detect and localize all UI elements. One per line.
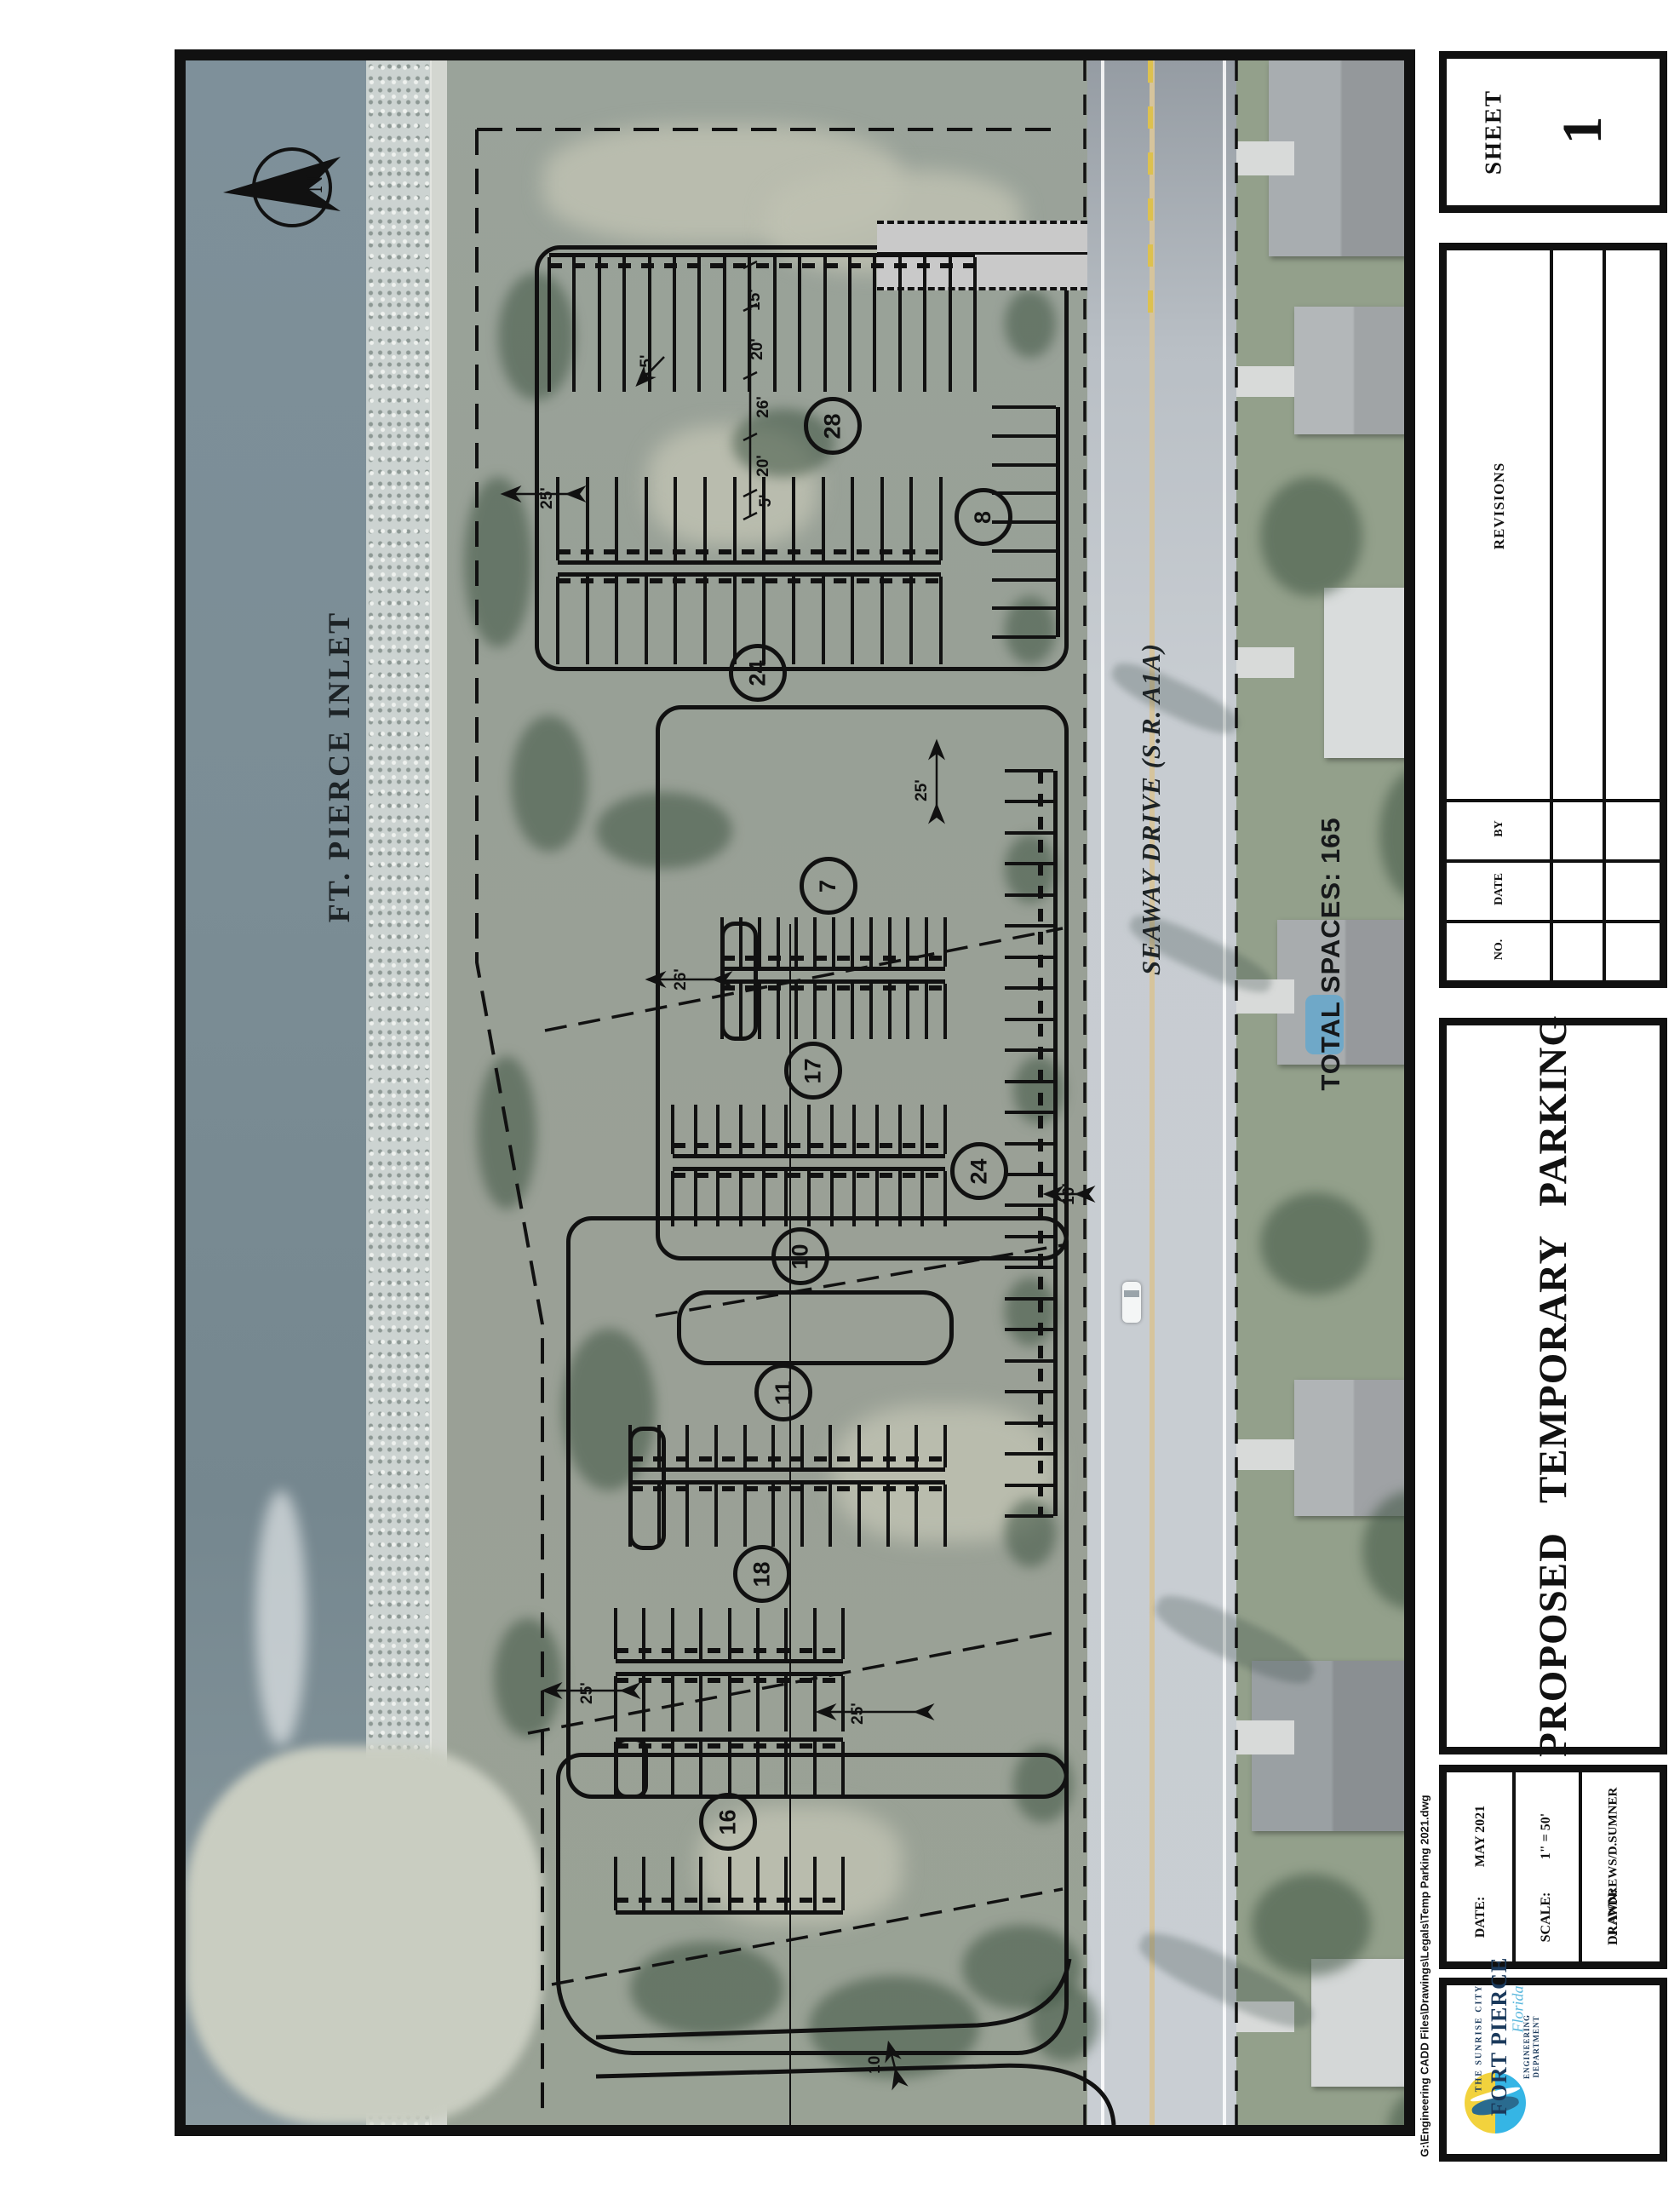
stall-tick [798,257,801,392]
revisions-box: REVISIONS BY DATE NO. [1439,243,1667,988]
stall-tick [762,1105,765,1154]
dimension-label: 25' [913,779,932,801]
stall-tick [898,1171,902,1226]
stall-tick [813,1742,817,1795]
stall-tick [728,1857,731,1910]
stall-tick [873,257,876,392]
stall-tick [925,917,928,967]
stall-tick [886,1485,890,1547]
stall-tick [875,1105,879,1154]
drawing-info-box: DATE: MAY 2021 SCALE: 1" = 50' DRAWN: J.… [1439,1765,1667,1969]
stall-tick [673,257,676,392]
stall-tick [992,434,1056,438]
stall-tick [992,578,1056,582]
sheet-label: SHEET [1481,89,1507,175]
stall-tick [720,917,724,967]
stall-tick [1005,1018,1053,1021]
stall-tick [906,917,909,967]
revisions-col-date: DATE [1493,873,1506,905]
stall-tick [822,477,825,560]
stall-tick [694,1105,697,1154]
stall-tick [813,984,817,1039]
stall-tick [642,1608,645,1659]
agency-logo-box: THE SUNRISE CITY FORT PIERCE Florida ENG… [1439,1978,1667,2162]
stall-tick [614,1742,617,1795]
stall-tick [671,1676,674,1731]
stall-tick [699,1608,702,1659]
stall-tick [886,1425,890,1467]
stall-tick [869,984,873,1039]
parking-row-line [630,1467,945,1472]
stall-tick [762,477,765,560]
stall-tick [841,1857,845,1910]
parking-row-line [616,1910,843,1915]
stall-tick [756,1742,760,1795]
stall-tick [1005,1359,1053,1363]
stall-tick [832,984,835,1039]
sheet-page: 28824717241011181615'20'26'20'5'9.5'25'2… [0,0,1680,2211]
stall-tick [674,477,677,560]
parking-layout-layer: 28824717241011181615'20'26'20'5'9.5'25'2… [186,60,1404,2125]
stall-tick [1005,1142,1053,1146]
stall-tick [614,1676,617,1731]
space-count-value: 28 [819,413,846,439]
stall-tick [699,1676,702,1731]
stall-tick [813,1608,817,1659]
stall-tick [1005,1514,1053,1518]
stall-tick [880,577,884,664]
stall-tick [614,1857,617,1910]
stall-tick [645,577,648,664]
stall-tick [943,1485,947,1547]
stall-tick [813,1857,817,1910]
stall-tick [756,1676,760,1731]
stall-tick [857,1425,861,1467]
stall-tick [556,577,559,664]
stall-tick [949,257,952,392]
date-value: MAY 2021 [1473,1806,1488,1867]
stall-tick [852,1171,856,1226]
stall-tick [773,257,777,392]
stall-tick [739,917,743,967]
logo-dept-line1: ENGINEERING [1522,2014,1531,2079]
drawn-value: J. ANDREWS/D.SUMNER [1607,1788,1621,1937]
stall-tick [642,1742,645,1795]
stall-tick [813,917,817,967]
date-label: DATE: [1473,1897,1488,1938]
stall-tick [943,1425,947,1467]
stall-tick [943,1105,947,1154]
stall-tick [992,606,1056,610]
parking-row-line [1056,407,1060,637]
space-count-value: 24 [744,660,771,686]
space-count-badge: 24 [950,1142,1008,1200]
stall-tick [716,1171,720,1226]
stall-tick [1005,1048,1053,1052]
stall-tick [841,1608,845,1659]
stall-tick [614,1608,617,1659]
stall-tick [909,477,913,560]
space-count-value: 11 [770,1381,796,1405]
stall-tick [685,1425,689,1467]
drawing-title: PROPOSED TEMPORARY PARKING [1530,1014,1576,1757]
stall-tick [739,1171,743,1226]
stall-stop-dashes [549,263,975,268]
info-divider [1512,1772,1516,1961]
stall-tick [813,1676,817,1731]
stall-tick [671,1105,674,1154]
stall-tick [898,1105,902,1154]
sheet-number-box: SHEET 1 [1439,51,1667,213]
stall-tick [758,984,761,1039]
stall-tick [943,984,947,1039]
stall-tick [671,1171,674,1226]
info-divider [1579,1772,1582,1961]
stall-tick [758,917,761,967]
stall-tick [800,1485,804,1547]
stall-stop-dashes [630,1486,945,1491]
stall-tick [728,1676,731,1731]
stall-tick [1005,1173,1053,1176]
stall-tick [792,577,795,664]
stall-tick [851,984,854,1039]
stall-tick [943,1171,947,1226]
stall-tick [869,917,873,967]
stall-tick [857,1485,861,1547]
space-count-value: 24 [966,1158,992,1184]
stall-tick [733,577,737,664]
dimension-label: 20' [748,338,767,360]
stall-tick [784,1608,788,1659]
revisions-col-by: BY [1493,820,1506,836]
stall-tick [1005,800,1053,803]
stall-tick [852,1105,856,1154]
stall-tick [628,1425,632,1467]
stall-tick [748,257,751,392]
dimension-label: 25' [538,487,557,509]
stall-tick [1005,1452,1053,1456]
space-count-badge: 28 [804,397,862,455]
stall-tick [823,257,827,392]
stall-tick [915,1425,918,1467]
stall-tick [739,1105,743,1154]
stall-tick [762,1171,765,1226]
stall-tick [794,917,798,967]
stall-tick [777,917,780,967]
space-count-badge: 7 [800,857,857,915]
space-count-badge: 24 [729,644,787,702]
stall-tick [888,917,892,967]
parking-row-line [616,1659,843,1663]
stall-tick [792,477,795,560]
stall-tick [671,1742,674,1795]
dimension-label: 25' [849,1703,868,1725]
stall-tick [992,549,1056,553]
space-count-badge: 11 [754,1364,812,1421]
space-count-badge: 10 [771,1227,829,1285]
stall-tick [642,1676,645,1731]
stall-tick [841,1676,845,1731]
revisions-header-line [1447,799,1660,802]
space-count-value: 16 [714,1809,741,1835]
revisions-header-line [1447,859,1660,863]
stall-tick [716,1105,720,1154]
space-count-value: 18 [748,1561,775,1587]
stall-tick [939,477,943,560]
inlet-label: FT. PIERCE INLET [321,611,357,922]
stall-tick [671,1608,674,1659]
stall-tick [1005,1328,1053,1331]
stall-tick [939,577,943,664]
scale-value: 1" = 50' [1539,1813,1554,1859]
revisions-header-line [1447,920,1660,923]
stall-tick [1005,893,1053,897]
parking-row-line [673,1154,945,1158]
stall-tick [642,1857,645,1910]
stall-tick [1005,862,1053,865]
stall-stop-dashes [630,1456,945,1462]
space-count-badge: 17 [784,1042,842,1100]
space-count-value: 7 [816,879,842,892]
drawing-title-box: PROPOSED TEMPORARY PARKING [1439,1018,1667,1754]
stall-tick [657,1485,661,1547]
dimension-label: 10' [1060,1183,1079,1205]
dimension-label: 26' [754,396,773,418]
revisions-col-no: NO. [1493,939,1506,961]
stall-tick [909,577,913,664]
stall-tick [1005,956,1053,959]
stall-tick [777,984,780,1039]
dimension-label: 15' [746,289,765,311]
stall-tick [925,984,928,1039]
road-label: SEAWAY DRIVE (S.R. A1A) [1136,643,1167,975]
stall-tick [875,1171,879,1226]
stall-tick [720,984,724,1039]
stall-tick [657,1425,661,1467]
stall-tick [830,1105,834,1154]
stall-tick [1005,1421,1053,1425]
stall-tick [829,1485,832,1547]
stall-tick [923,257,926,392]
stall-tick [723,257,726,392]
dimension-label: 26' [672,968,691,991]
stall-tick [920,1171,924,1226]
revisions-title: REVISIONS [1491,462,1508,550]
stall-tick [784,1105,788,1154]
scale-label: SCALE: [1539,1892,1554,1943]
stall-tick [851,477,854,560]
dimension-label: 5' [757,494,776,507]
stall-tick [784,1676,788,1731]
stall-tick [992,635,1056,639]
stall-tick [851,577,854,664]
stall-tick [714,1425,718,1467]
space-count-value: 10 [787,1243,813,1269]
stall-tick [832,917,835,967]
space-count-badge: 18 [733,1545,791,1603]
stall-tick [615,477,618,560]
stall-tick [1005,1297,1053,1301]
parking-row-line [630,1480,945,1485]
stall-tick [703,477,707,560]
stall-tick [572,257,576,392]
stall-tick [1005,1235,1053,1238]
stall-tick [622,257,626,392]
stall-tick [703,577,707,664]
stall-tick [915,1485,918,1547]
stall-tick [1005,1390,1053,1393]
stall-tick [739,984,743,1039]
stall-tick [771,1485,775,1547]
stall-tick [1005,1266,1053,1269]
stall-tick [898,257,902,392]
stall-tick [1005,986,1053,990]
stall-tick [784,1171,788,1226]
stall-tick [756,1857,760,1910]
dimension-label: 9.5' [638,355,657,382]
dimension-label: 25' [578,1682,597,1704]
cad-file-path: G:\Engineering CADD Files\Drawings\Legal… [1419,1795,1431,2156]
stall-tick [743,1425,747,1467]
stall-tick [848,257,851,392]
stall-tick [888,984,892,1039]
stall-tick [586,477,589,560]
dimension-label: 20' [754,455,773,477]
logo-city-name: FORT PIERCE [1487,1957,1512,2116]
space-count-value: 17 [800,1058,826,1083]
stall-tick [697,257,701,392]
stall-tick [699,1742,702,1795]
stall-tick [800,1425,804,1467]
stall-tick [807,1171,811,1226]
space-count-badge: 8 [955,488,1012,546]
stall-tick [1005,1203,1053,1207]
revisions-divider [1550,250,1553,980]
stall-tick [992,405,1056,409]
stall-tick [807,1105,811,1154]
stall-tick [671,1857,674,1910]
stall-tick [1005,1484,1053,1487]
stall-tick [1005,769,1053,772]
logo-tagline: THE SUNRISE CITY [1475,1984,1484,2092]
stall-tick [851,917,854,967]
stall-tick [645,477,648,560]
total-spaces-label: TOTAL SPACES: 165 [1316,817,1346,1090]
stall-tick [628,1485,632,1547]
stall-tick [1005,924,1053,927]
stall-tick [1005,831,1053,835]
stall-tick [728,1608,731,1659]
stall-tick [699,1857,702,1910]
stall-tick [756,1608,760,1659]
stall-tick [598,257,601,392]
stall-tick [784,1742,788,1795]
stall-tick [685,1485,689,1547]
parking-row-line [549,253,975,257]
stall-tick [906,984,909,1039]
north-arrow-label: N [301,175,329,192]
stall-tick [973,257,977,392]
stall-tick [1005,1080,1053,1083]
plan-viewport: 28824717241011181615'20'26'20'5'9.5'25'2… [175,49,1415,2136]
stall-tick [548,257,551,392]
logo-dept-line2: DEPARTMENT [1532,2015,1540,2077]
stall-tick [743,1485,747,1547]
space-count-badge: 16 [699,1793,757,1851]
stall-tick [714,1485,718,1547]
stall-tick [880,477,884,560]
stall-tick [771,1425,775,1467]
stall-tick [829,1425,832,1467]
stall-tick [841,1742,845,1795]
parking-row-line [722,967,945,971]
stall-tick [694,1171,697,1226]
stall-tick [784,1857,788,1910]
dimension-label: 10' [866,2052,885,2074]
space-count-value: 8 [971,510,997,523]
parking-row-line [558,560,941,565]
stall-tick [794,984,798,1039]
stall-tick [674,577,677,664]
stall-tick [830,1171,834,1226]
revisions-divider [1603,250,1606,980]
stall-tick [992,463,1056,467]
stall-tick [943,917,947,967]
stall-tick [1005,1111,1053,1114]
stall-tick [728,1742,731,1795]
stall-tick [615,577,618,664]
stall-tick [920,1105,924,1154]
stall-tick [586,577,589,664]
stall-tick [733,477,737,560]
parking-row-line [1053,771,1058,1516]
sheet-number: 1 [1551,117,1615,145]
stall-tick [822,577,825,664]
